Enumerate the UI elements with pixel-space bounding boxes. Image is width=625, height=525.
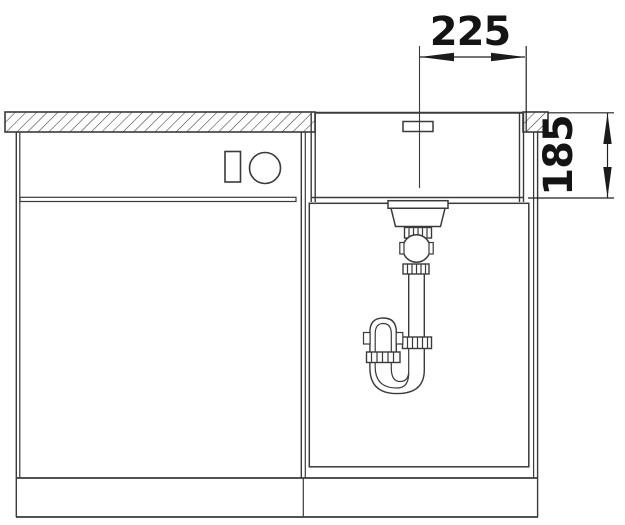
worktop-section-left <box>5 112 315 132</box>
plinth <box>16 478 538 517</box>
technical-drawing-canvas: 225 185 <box>0 0 625 525</box>
drain-strainer <box>388 201 448 238</box>
sink-bowl <box>311 46 523 202</box>
dimension-depth-label: 185 <box>536 115 582 196</box>
cabinet-control-circle <box>250 153 281 184</box>
base-cabinet-left <box>16 132 296 478</box>
siphon-trap <box>364 235 434 394</box>
sink-installation-diagram: 225 185 <box>0 0 625 525</box>
overflow-slot <box>403 122 433 132</box>
dimension-width-label: 225 <box>430 9 511 55</box>
dimension-depth: 185 <box>528 113 614 198</box>
trap-ball-joint <box>403 235 430 262</box>
cabinet-divider-rail <box>20 197 296 201</box>
cabinet-control-rectangle <box>225 152 241 183</box>
